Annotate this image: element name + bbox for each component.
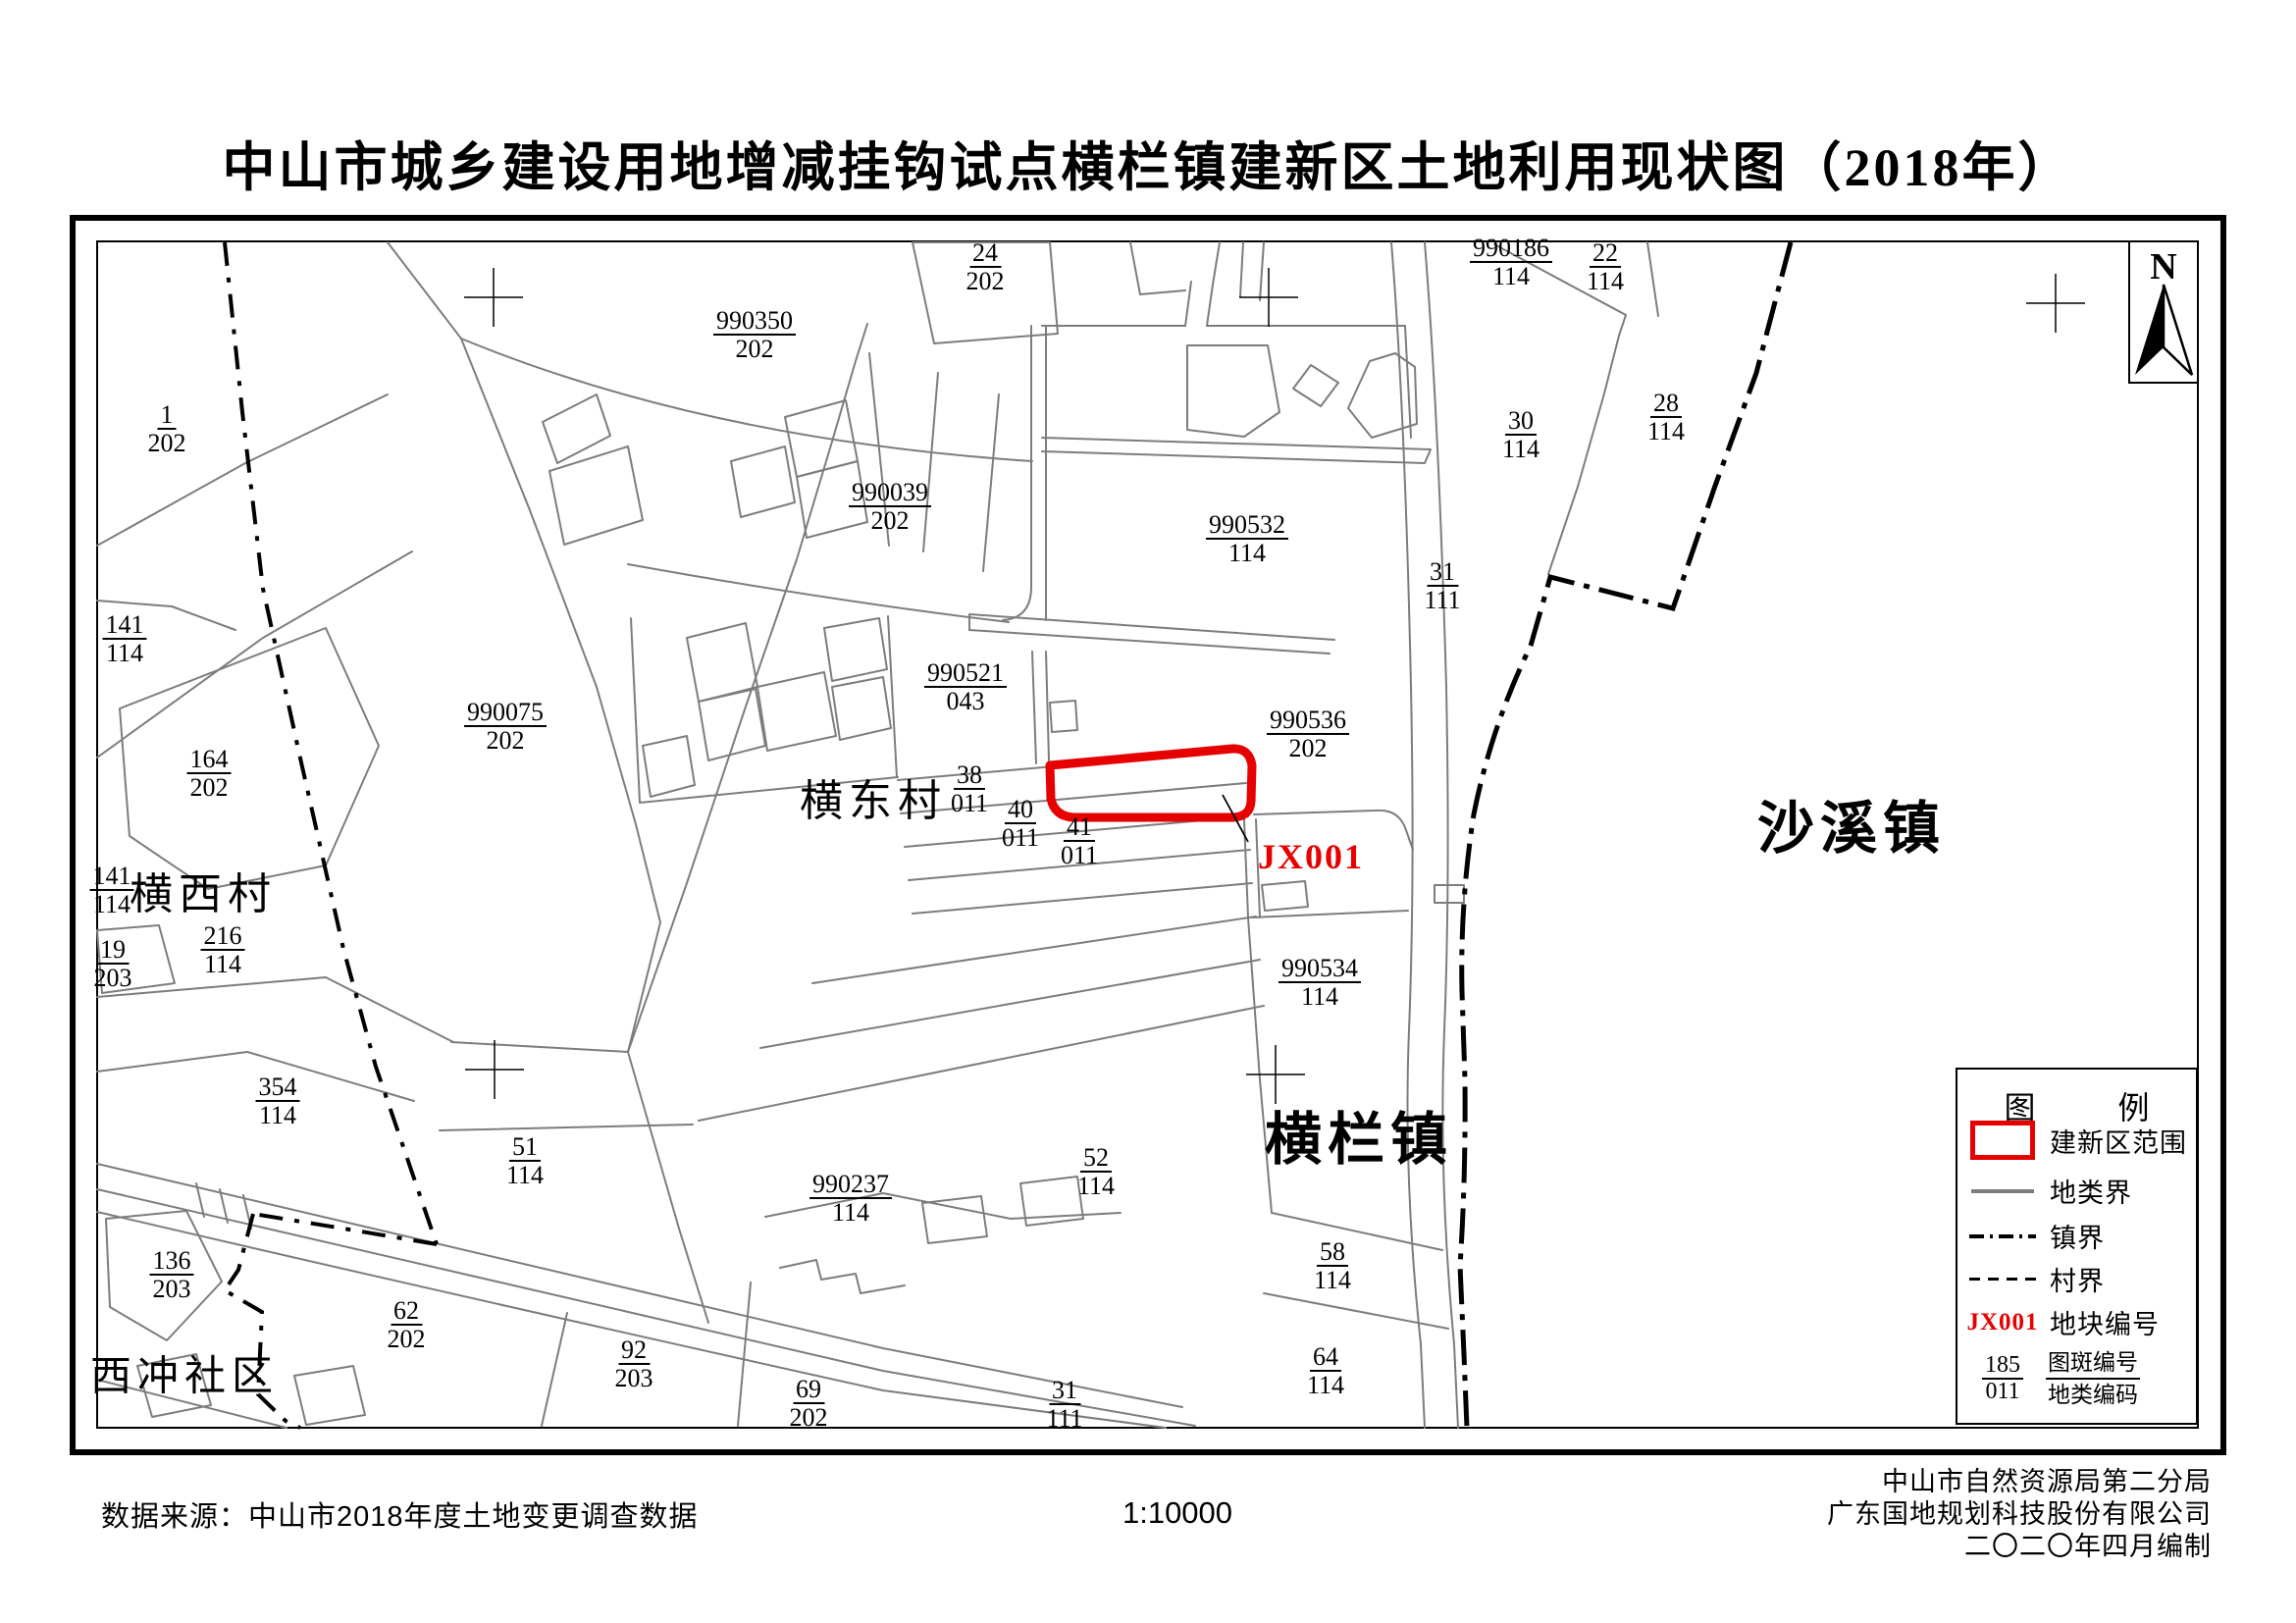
north-letter: N <box>2150 245 2176 288</box>
parcel-label: 141114 <box>90 863 134 917</box>
parcel-label: 990075202 <box>464 699 547 754</box>
parcel-label: 990237114 <box>809 1171 892 1226</box>
parcel-label: 990521043 <box>924 659 1007 714</box>
parcel-label: 31111 <box>1424 558 1460 613</box>
legend-item-new-area: 建新区范围 <box>1965 1121 2187 1160</box>
parcel-label: 136203 <box>150 1247 194 1302</box>
parcel-label: 990536202 <box>1267 707 1349 761</box>
landuse-map-sheet: { "title": "中山市城乡建设用地增减挂钩试点横栏镇建新区土地利用现状图… <box>0 0 2296 1623</box>
legend-label: 村界 <box>2050 1260 2105 1298</box>
parcel-label: 990350202 <box>713 307 796 362</box>
legend-item-landtype: 地类界 <box>1965 1172 2132 1210</box>
place-name-label: 西冲社区 <box>90 1343 279 1403</box>
parcel-label: 354114 <box>256 1073 300 1128</box>
legend-item-town-boundary: 镇界 <box>1965 1217 2105 1255</box>
parcel-code-swatch: JX001 <box>1966 1309 2038 1336</box>
place-name-label: 沙溪镇 <box>1757 782 1946 864</box>
parcel-label: 990186114 <box>1470 235 1552 289</box>
parcel-label: 41011 <box>1061 813 1098 868</box>
parcel-label: 64114 <box>1307 1343 1344 1398</box>
parcel-label: 69202 <box>790 1376 828 1431</box>
parcel-label: 141114 <box>103 611 147 666</box>
parcel-label: 30114 <box>1502 407 1539 462</box>
parcel-label: 92203 <box>615 1336 653 1391</box>
parcel-label: 19203 <box>94 936 132 991</box>
parcel-label: 990039202 <box>849 479 931 534</box>
legend: 图 例 建新区范围 地类界 镇界 村界 JX001 地块编号 185 011 图… <box>1956 1068 2198 1425</box>
fraction-labels: 图斑编号 地类编码 <box>2046 1350 2140 1408</box>
legend-item-village-boundary: 村界 <box>1965 1260 2105 1298</box>
place-name-label: 横东村 <box>800 765 947 828</box>
parcel-label: 22114 <box>1587 239 1624 294</box>
parcel-label: 164202 <box>187 746 232 801</box>
place-name-label: 横西村 <box>130 859 277 921</box>
legend-item-parcel-code: JX001 地块编号 <box>1965 1303 2160 1341</box>
parcel-label: 52114 <box>1077 1144 1115 1199</box>
parcel-label: 58114 <box>1314 1238 1351 1293</box>
legend-label: 镇界 <box>2050 1217 2105 1255</box>
parcel-label: 990532114 <box>1206 511 1288 566</box>
place-name-label: 横栏镇 <box>1265 1093 1453 1176</box>
legend-label: 地类编码 <box>2046 1380 2140 1407</box>
village-boundary-swatch <box>1969 1278 2036 1281</box>
legend-label: 建新区范围 <box>2050 1122 2187 1160</box>
legend-label: 地类界 <box>2050 1172 2132 1210</box>
parcel-label: 990534114 <box>1278 955 1361 1010</box>
town-boundary-swatch <box>1969 1234 2036 1238</box>
legend-item-patch-fraction: 185 011 图斑编号 地类编码 <box>1965 1350 2140 1408</box>
parcel-label: 24202 <box>966 239 1005 294</box>
new-area-swatch <box>1970 1121 2035 1160</box>
fraction-swatch: 185 011 <box>1982 1353 2023 1404</box>
legend-label: 地块编号 <box>2050 1303 2160 1341</box>
parcel-label: 38011 <box>951 761 988 816</box>
parcel-label: 216114 <box>201 922 245 977</box>
parcel-label: 28114 <box>1647 390 1685 445</box>
legend-label: 图斑编号 <box>2046 1350 2140 1380</box>
parcel-label: 1202 <box>148 401 186 456</box>
jx001-parcel-code-label: JX001 <box>1258 836 1364 877</box>
landtype-line-swatch <box>1971 1189 2034 1193</box>
parcel-label: 40011 <box>1002 796 1039 851</box>
parcel-label: 62202 <box>388 1297 426 1352</box>
map-labels-layer: 2420299035020299018611422114120228114301… <box>0 0 2296 1623</box>
parcel-label: 51114 <box>506 1133 544 1188</box>
parcel-label: 31111 <box>1046 1377 1082 1432</box>
